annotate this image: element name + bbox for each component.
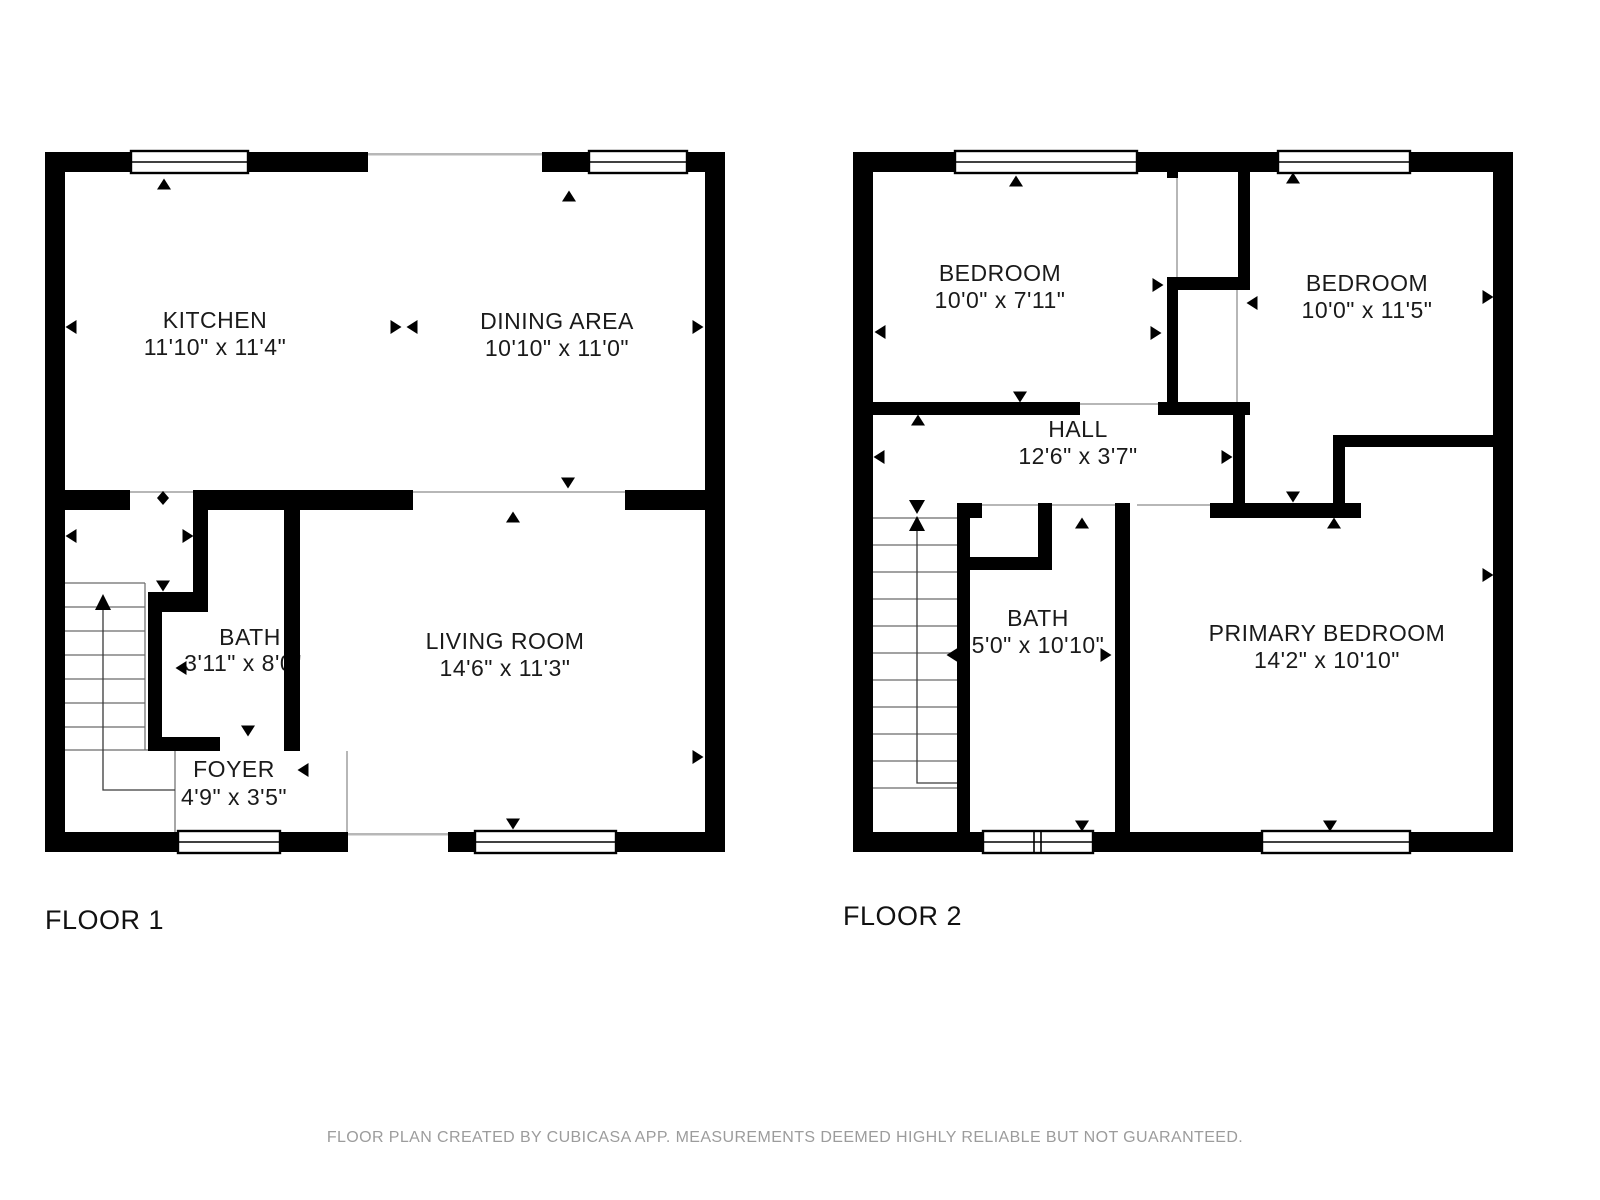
room-label-bath-2: BATH	[1007, 605, 1069, 631]
floor2-walls	[853, 152, 1513, 852]
floor1-room-labels: KITCHEN 11'10" x 11'4" DINING AREA 10'10…	[144, 307, 634, 810]
room-dims-bath-2: 5'0" x 10'10"	[972, 632, 1105, 658]
room-dims-bedroom-2: 10'0" x 11'5"	[1302, 297, 1433, 323]
floor1-plan: KITCHEN 11'10" x 11'4" DINING AREA 10'10…	[45, 151, 725, 853]
room-dims-kitchen: 11'10" x 11'4"	[144, 334, 287, 360]
floor1-walls	[45, 152, 725, 852]
floor2-room-labels: BEDROOM 10'0" x 7'11" BEDROOM 10'0" x 11…	[935, 260, 1446, 673]
room-label-hall: HALL	[1048, 416, 1108, 442]
room-label-bedroom-1: BEDROOM	[939, 260, 1061, 286]
floor1-stairs-direction-arrow	[95, 594, 175, 790]
room-label-foyer: FOYER	[193, 756, 275, 782]
window	[131, 151, 248, 173]
window	[1278, 151, 1410, 173]
room-label-bedroom-2: BEDROOM	[1306, 270, 1428, 296]
floor2-stairs-direction-arrow	[909, 500, 957, 783]
room-label-bath-1: BATH	[219, 624, 281, 650]
footer-attribution: FLOOR PLAN CREATED BY CUBICASA APP. MEAS…	[327, 1129, 1243, 1146]
floor-plan-page: KITCHEN 11'10" x 11'4" DINING AREA 10'10…	[0, 0, 1600, 1200]
window	[589, 151, 687, 173]
room-dims-foyer: 4'9" x 3'5"	[181, 784, 287, 810]
window	[475, 831, 616, 853]
floor2-caption: FLOOR 2	[843, 901, 962, 931]
floor-plan-canvas: KITCHEN 11'10" x 11'4" DINING AREA 10'10…	[0, 0, 1600, 1200]
room-dims-bedroom-1: 10'0" x 7'11"	[935, 287, 1066, 313]
room-label-kitchen: KITCHEN	[163, 307, 267, 333]
room-dims-living-room: 14'6" x 11'3"	[440, 655, 571, 681]
window	[178, 831, 280, 853]
floor1-caption: FLOOR 1	[45, 905, 164, 935]
room-label-primary-bedroom: PRIMARY BEDROOM	[1209, 620, 1446, 646]
floor2-stairs	[873, 500, 957, 788]
floor2-plan: BEDROOM 10'0" x 7'11" BEDROOM 10'0" x 11…	[853, 151, 1513, 853]
room-dims-primary-bedroom: 14'2" x 10'10"	[1254, 647, 1400, 673]
room-dims-dining-area: 10'10" x 11'0"	[485, 335, 629, 361]
window	[983, 831, 1093, 853]
room-label-living-room: LIVING ROOM	[426, 628, 585, 654]
window	[1262, 831, 1410, 853]
window	[955, 151, 1137, 173]
room-label-dining-area: DINING AREA	[480, 308, 634, 334]
room-dims-hall: 12'6" x 3'7"	[1018, 443, 1137, 469]
